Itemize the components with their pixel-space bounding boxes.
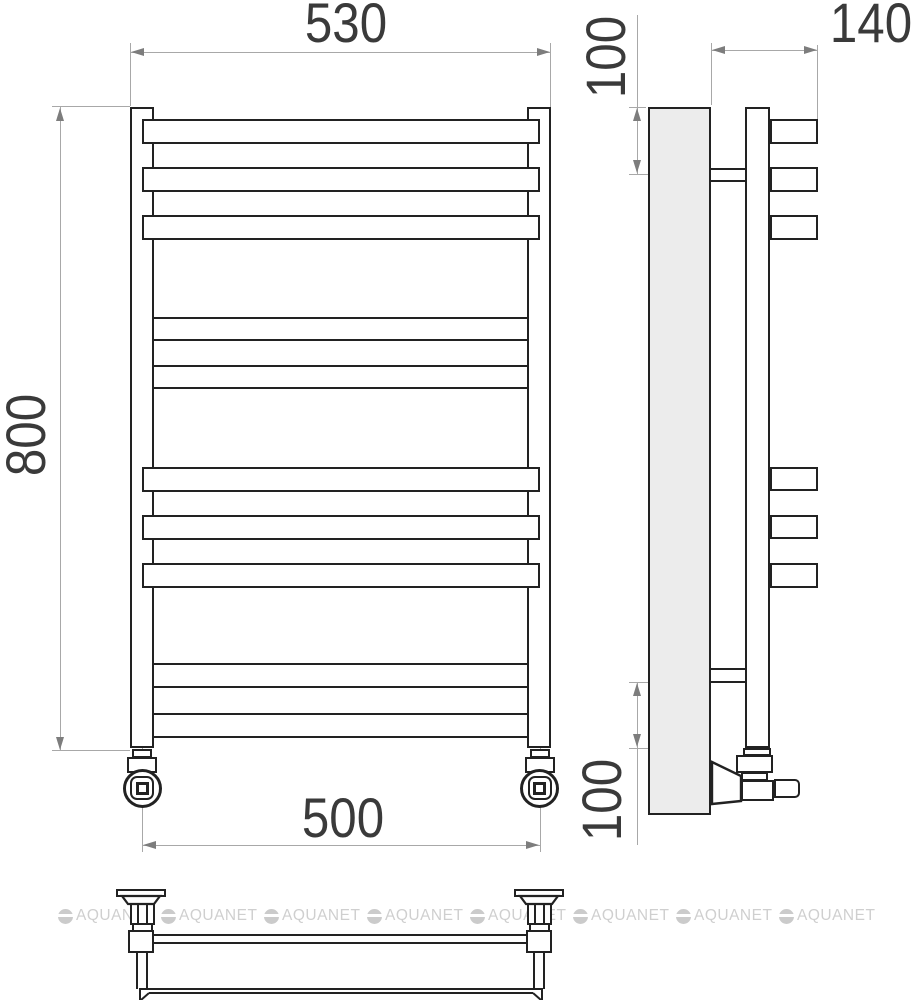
mounting-bracket-bottom — [711, 668, 748, 683]
dimension-arrow — [712, 46, 725, 54]
technical-drawing-canvas: AQUANET AQUANET AQUANET AQUANET AQUANET … — [0, 0, 912, 1000]
leg-line — [533, 953, 535, 989]
dimension-arrow — [143, 841, 156, 849]
side-towel-bar — [770, 215, 818, 240]
riser-tube — [745, 107, 770, 748]
aquanet-logo-icon — [470, 909, 485, 924]
valve-faceted-block — [130, 903, 155, 925]
extension-line — [52, 106, 130, 107]
aquanet-logo-icon — [58, 909, 73, 924]
dimension-arrow — [633, 160, 641, 173]
valve-cap — [116, 889, 166, 897]
towel-bar — [142, 119, 540, 144]
valve-knob — [774, 779, 800, 798]
aquanet-logo-icon — [573, 909, 588, 924]
valve-faceted-block — [527, 903, 552, 925]
extension-line — [52, 750, 130, 751]
watermark-text: AQUANET — [797, 907, 875, 925]
dim-800-line — [60, 107, 61, 750]
dimension-arrow — [633, 108, 641, 121]
side-towel-bar — [770, 515, 818, 539]
left-post — [130, 107, 154, 748]
watermark-text: AQUANET — [385, 907, 463, 925]
post-top-view — [526, 930, 552, 953]
dim-140-label: 140 — [783, 0, 912, 51]
towel-bar-top-view — [139, 988, 543, 1000]
valve-cap — [514, 889, 564, 897]
valve-square-socket — [136, 782, 149, 795]
dim-530-label: 530 — [258, 0, 434, 51]
crossbar — [152, 713, 529, 738]
towel-bar — [142, 467, 540, 492]
dimension-arrow — [633, 734, 641, 747]
aquanet-logo-icon — [161, 909, 176, 924]
post-top-view — [128, 930, 154, 953]
valve-nut — [736, 755, 773, 773]
leg-line — [543, 953, 545, 989]
watermark: AQUANET — [573, 906, 669, 926]
watermark-text: AQUANET — [282, 907, 360, 925]
watermark: AQUANET — [779, 906, 875, 926]
extension-line — [629, 748, 649, 749]
dim-100-top-line — [637, 15, 638, 174]
towel-bar — [142, 563, 540, 588]
watermark-text: AQUANET — [179, 907, 257, 925]
watermark-text: AQUANET — [591, 907, 669, 925]
watermark: AQUANET — [367, 906, 463, 926]
side-towel-bar — [770, 563, 818, 588]
extension-line — [817, 45, 818, 119]
right-post — [527, 107, 551, 748]
valve-body — [741, 780, 774, 801]
towel-bar — [142, 515, 540, 540]
watermark-text: AQUANET — [694, 907, 772, 925]
side-towel-bar — [770, 467, 818, 491]
aquanet-logo-icon — [779, 909, 794, 924]
crossbar — [152, 317, 529, 341]
dim-800-label: 800 — [0, 347, 54, 523]
towel-bar — [142, 215, 540, 240]
dim-100-bottom-label: 100 — [574, 712, 630, 888]
dimension-arrow — [131, 48, 144, 56]
dimension-arrow — [526, 841, 539, 849]
wall-panel — [648, 107, 711, 815]
dim-100-bottom-line — [637, 682, 638, 845]
dimension-arrow — [56, 108, 64, 121]
side-towel-bar — [770, 167, 818, 192]
leg-line — [146, 953, 148, 989]
watermark: AQUANET — [264, 906, 360, 926]
aquanet-logo-icon — [676, 909, 691, 924]
mounting-bracket-top — [711, 168, 748, 182]
side-towel-bar — [770, 119, 818, 144]
towel-bar — [142, 167, 540, 192]
aquanet-logo-icon — [367, 909, 382, 924]
crossbar — [152, 365, 529, 389]
aquanet-logo-icon — [264, 909, 279, 924]
dim-500-label: 500 — [255, 790, 431, 846]
crossbar — [152, 663, 529, 688]
dimension-arrow — [633, 683, 641, 696]
watermark: AQUANET — [161, 906, 257, 926]
dim-100-top-label: 100 — [578, 0, 634, 145]
watermark: AQUANET — [676, 906, 772, 926]
dimension-arrow — [56, 737, 64, 750]
crossbar-top-view — [154, 934, 526, 944]
leg-line — [136, 953, 138, 989]
dimension-arrow — [537, 48, 550, 56]
valve-square-socket — [533, 782, 546, 795]
